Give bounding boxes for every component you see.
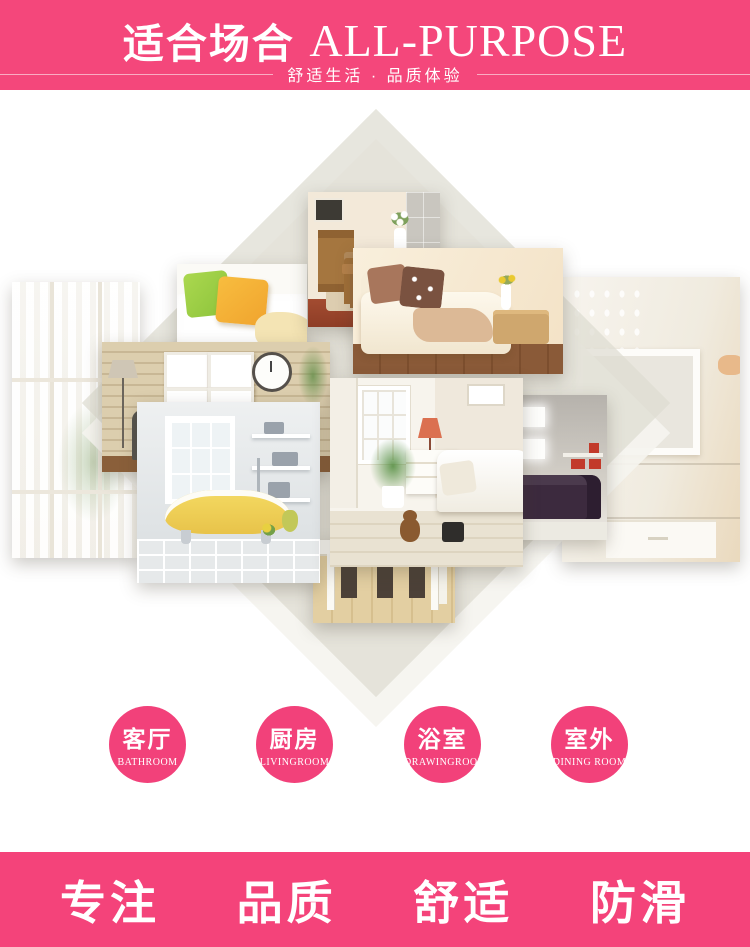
footer-banner: 专注 品质 舒适 防滑 bbox=[0, 852, 750, 947]
book-shelf bbox=[563, 453, 603, 457]
footer-word-focus: 专注 bbox=[60, 867, 160, 933]
wall-clock bbox=[252, 352, 292, 392]
tub-foot bbox=[181, 530, 191, 544]
red-books bbox=[589, 443, 599, 453]
badge-outdoor: 室外 DINING ROOM bbox=[551, 706, 628, 783]
page-title: 适合场合 ALL-PURPOSE bbox=[0, 10, 750, 70]
photo-cream-chaise bbox=[353, 248, 563, 374]
glowing-frame bbox=[523, 439, 545, 459]
cabinet-handle bbox=[648, 537, 668, 540]
green-plant bbox=[298, 346, 328, 406]
floor-lamp-shade bbox=[108, 360, 138, 378]
badge-label-en: DRAWINGROOM bbox=[404, 757, 481, 768]
yellow-flowers bbox=[258, 520, 280, 540]
damask-pillow bbox=[399, 266, 445, 310]
promo-banner-page: 适合场合 ALL-PURPOSE 舒适生活 · 品质体验 bbox=[0, 0, 750, 947]
badge-label-cn: 厨房 bbox=[256, 720, 333, 754]
peach-cushion bbox=[718, 355, 740, 375]
teddy-bear bbox=[400, 518, 420, 542]
plank-floor bbox=[330, 511, 523, 567]
footer-word-quality: 品质 bbox=[237, 867, 337, 933]
subtitle-line-left bbox=[0, 74, 273, 75]
window-frame bbox=[50, 282, 54, 558]
tiled-floor bbox=[137, 539, 320, 583]
footer-word-antislip: 防滑 bbox=[590, 867, 690, 933]
header-banner: 适合场合 ALL-PURPOSE 舒适生活 · 品质体验 bbox=[0, 0, 750, 90]
badge-label-cn: 浴室 bbox=[404, 720, 481, 754]
dark-bag bbox=[442, 522, 464, 542]
title-english: ALL-PURPOSE bbox=[309, 15, 627, 66]
white-pot bbox=[382, 486, 404, 508]
badge-label-cn: 室外 bbox=[551, 720, 628, 754]
yellow-flowers bbox=[495, 272, 519, 288]
photo-living-room bbox=[330, 378, 523, 567]
low-cabinet bbox=[606, 522, 716, 558]
badge-label-en: LIVINGROOM bbox=[256, 757, 333, 768]
rattan-table bbox=[493, 310, 549, 344]
shelf-object bbox=[264, 422, 284, 434]
lamp-stem bbox=[429, 438, 431, 450]
wall-picture bbox=[314, 198, 344, 222]
microwave bbox=[272, 452, 298, 466]
badge-label-cn: 客厅 bbox=[109, 720, 186, 754]
floor-lamp-pole bbox=[122, 378, 124, 448]
wall-shelf bbox=[252, 466, 310, 470]
window-frame bbox=[12, 490, 140, 494]
photo-pillows-sofa bbox=[177, 264, 307, 348]
red-books bbox=[589, 459, 601, 469]
photo-dark-sofa bbox=[513, 395, 607, 540]
dark-leather-sofa bbox=[515, 475, 601, 519]
mirror-frame bbox=[208, 352, 254, 390]
badge-bathroom: 浴室 DRAWINGROOM bbox=[404, 706, 481, 783]
white-pillow bbox=[439, 460, 477, 496]
photo-bathroom-tub bbox=[137, 402, 320, 583]
wall-frame bbox=[467, 384, 505, 406]
subtitle-text: 舒适生活 · 品质体验 bbox=[273, 62, 476, 86]
tan-throw bbox=[413, 308, 493, 342]
white-rug bbox=[513, 522, 607, 540]
title-chinese: 适合场合 bbox=[123, 21, 295, 67]
white-door bbox=[330, 378, 358, 508]
badge-kitchen: 厨房 LIVINGROOM bbox=[256, 706, 333, 783]
white-flowers bbox=[386, 208, 414, 230]
header-subtitle-row: 舒适生活 · 品质体验 bbox=[0, 62, 750, 86]
glowing-frame bbox=[523, 407, 545, 427]
footer-word-comfort: 舒适 bbox=[413, 867, 513, 933]
badge-living-room: 客厅 BATHROOM bbox=[109, 706, 186, 783]
wall-shelf bbox=[252, 434, 310, 438]
badge-label-en: DINING ROOM bbox=[551, 757, 628, 768]
badge-label-en: BATHROOM bbox=[109, 757, 186, 768]
red-books bbox=[571, 459, 585, 469]
subtitle-line-right bbox=[477, 74, 750, 75]
mirror-frame bbox=[164, 352, 210, 390]
green-vase bbox=[282, 510, 298, 532]
